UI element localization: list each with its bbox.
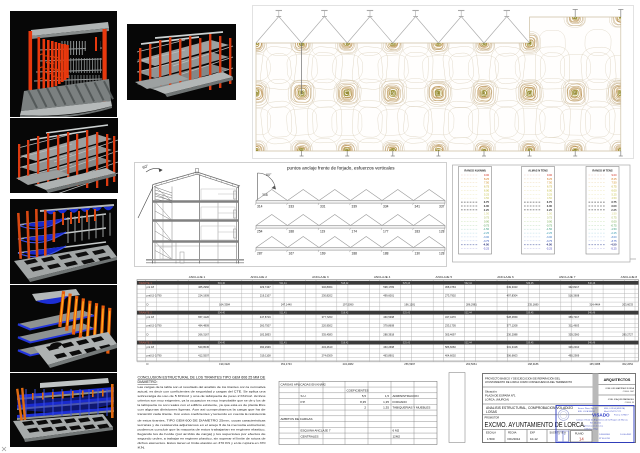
svg-text:pnt0,5 0,790: pnt0,5 0,790 <box>147 324 162 328</box>
svg-text:-0.75: -0.75 <box>483 223 489 227</box>
svg-text:con algunas divisiones ligeras: con algunas divisiones ligeras. Aun asi … <box>138 408 266 412</box>
svg-text:220,9502: 220,9502 <box>322 324 333 328</box>
svg-text:DIAMETRO:: DIAMETRO: <box>138 380 158 384</box>
svg-text:la tabiqueria no son reales co: la tabiqueria no son reales con el edifi… <box>138 403 266 407</box>
svg-text:188: 188 <box>289 230 295 234</box>
svg-text:1.50: 1.50 <box>484 212 490 216</box>
svg-text:TIRANTE 1: TIRANTE 1 <box>139 281 153 285</box>
svg-text:-1.50: -1.50 <box>483 227 489 231</box>
svg-text:182,5853: 182,5853 <box>260 332 271 336</box>
svg-text:Ref. 40-0221: Ref. 40-0221 <box>590 423 601 425</box>
svg-text:504,40: 504,40 <box>218 282 226 285</box>
svg-text:COEFICIENTES: COEFICIENTES <box>347 388 369 392</box>
svg-text:S.U.: S.U. <box>301 394 307 398</box>
svg-text:347,4470: 347,4470 <box>445 315 456 319</box>
svg-text:-5.25: -5.25 <box>483 247 489 251</box>
svg-text:TIRANTE 3: TIRANTE 3 <box>139 341 153 345</box>
svg-text:532,44: 532,44 <box>464 342 472 345</box>
svg-text:3.75: 3.75 <box>611 200 617 204</box>
svg-text:-5.25: -5.25 <box>546 247 552 251</box>
svg-text:-3.00: -3.00 <box>611 235 617 239</box>
svg-text:332,8217: 332,8217 <box>568 285 579 289</box>
svg-text:273,7902: 273,7902 <box>445 294 456 298</box>
svg-text:274,6309: 274,6309 <box>322 354 333 358</box>
svg-text:167: 167 <box>289 252 295 256</box>
svg-text:197,5090: 197,5090 <box>343 302 354 306</box>
svg-text:368,4763: 368,4763 <box>445 285 456 289</box>
svg-text:3.00: 3.00 <box>611 204 617 208</box>
svg-text:8.25: 8.25 <box>547 177 553 181</box>
svg-text:2.25: 2.25 <box>484 208 490 212</box>
svg-text:235,1680: 235,1680 <box>528 302 539 306</box>
svg-text:177: 177 <box>383 230 389 234</box>
svg-text:119: 119 <box>320 230 325 234</box>
svg-text:6.00: 6.00 <box>612 189 618 193</box>
svg-text:ESCALA: ESCALA <box>486 432 496 435</box>
svg-text:criterios son muy exigentes, y: criterios son muy exigentes, ya la ocupa… <box>138 399 266 403</box>
svg-text:335,4583: 335,4583 <box>322 332 333 336</box>
svg-text:12M2: 12M2 <box>393 434 401 438</box>
svg-text:PLANO: PLANO <box>575 433 584 436</box>
svg-text:0.00: 0.00 <box>484 219 490 223</box>
svg-text:C/ Alamo, 1 Bajo: C/ Alamo, 1 Bajo <box>584 428 598 431</box>
svg-text:224,1909: 224,1909 <box>198 294 209 298</box>
svg-text:130: 130 <box>415 252 421 256</box>
svg-text:9.00: 9.00 <box>547 173 553 177</box>
svg-text:Fecha: 679477: Fecha: 679477 <box>614 415 629 417</box>
svg-text:pnt 18: pnt 18 <box>147 345 155 349</box>
svg-text:494,4809: 494,4809 <box>198 324 209 328</box>
svg-text:465,2960: 465,2960 <box>198 285 209 289</box>
svg-text:llegando los de borde (por amb: llegando los de borde (por ambito de car… <box>138 432 266 436</box>
svg-text:Nº 66-4760: Nº 66-4760 <box>599 437 611 440</box>
svg-text:128: 128 <box>439 252 445 256</box>
svg-text:EXP: EXP <box>530 432 535 435</box>
svg-text:287: 287 <box>257 252 263 256</box>
svg-text:598,1783: 598,1783 <box>383 285 394 289</box>
svg-text:1,35: 1,35 <box>383 400 389 404</box>
svg-text:219,2107: 219,2107 <box>260 294 271 298</box>
svg-text:-4.50: -4.50 <box>483 243 490 247</box>
svg-text:0.75: 0.75 <box>484 216 490 220</box>
svg-text:puntos anclaje frente de forja: puntos anclaje frente de forjado, esfuer… <box>287 166 395 171</box>
svg-text:254: 254 <box>257 230 263 234</box>
svg-text:-4.50: -4.50 <box>610 243 617 247</box>
svg-text:233,1705: 233,1705 <box>445 324 456 328</box>
svg-text:5.25: 5.25 <box>484 192 490 196</box>
svg-text:539,45: 539,45 <box>526 282 534 285</box>
svg-text:6.75: 6.75 <box>612 185 618 189</box>
svg-text:247,1440: 247,1440 <box>281 302 292 306</box>
svg-text:169: 169 <box>320 252 326 256</box>
svg-text:3.75: 3.75 <box>484 200 490 204</box>
svg-text:60°: 60° <box>266 173 272 177</box>
svg-text:288,3918: 288,3918 <box>383 332 394 336</box>
svg-text:164,3384: 164,3384 <box>219 302 230 306</box>
svg-text:LORCA, (MURCIA): LORCA, (MURCIA) <box>485 398 509 402</box>
svg-text:280,2727: 280,2727 <box>622 332 633 336</box>
svg-text:5.25: 5.25 <box>547 192 553 196</box>
svg-text:183: 183 <box>415 230 421 234</box>
svg-text:546,46: 546,46 <box>588 312 596 315</box>
svg-text:3.75: 3.75 <box>547 200 553 204</box>
svg-text:KN.: KN. <box>138 445 146 449</box>
svg-text:230,8202: 230,8202 <box>322 294 333 298</box>
svg-text:D: D <box>147 362 149 366</box>
svg-text:sobrecarga de uso de 5 KN/m2 y: sobrecarga de uso de 5 KN/m2 y una de ta… <box>138 394 267 398</box>
svg-text:segundo orden, a trabajar en r: segundo orden, a trabajar en regimen pla… <box>138 436 266 440</box>
svg-text:230,2088: 230,2088 <box>507 332 518 336</box>
svg-text:532,44: 532,44 <box>464 312 472 315</box>
svg-text:1.50: 1.50 <box>547 212 553 216</box>
svg-text:2.25: 2.25 <box>611 208 617 212</box>
svg-text:-3.75: -3.75 <box>611 239 617 243</box>
svg-text:377,7263: 377,7263 <box>322 315 333 319</box>
svg-text:ANALISIS ESTRUCTURAL, COMPROBA: ANALISIS ESTRUCTURAL, COMPROBACION VOLAD… <box>486 406 573 410</box>
svg-text:6.75: 6.75 <box>547 185 553 189</box>
svg-text:532,44: 532,44 <box>464 282 472 285</box>
svg-text:128: 128 <box>439 230 445 234</box>
svg-text:256,5997: 256,5997 <box>404 362 415 366</box>
svg-text:286,2981: 286,2981 <box>466 302 477 306</box>
svg-text:LOSAS: LOSAS <box>486 410 498 414</box>
svg-text:4.50: 4.50 <box>547 196 553 200</box>
svg-text:497,8304: 497,8304 <box>507 294 518 298</box>
svg-text:463,2698: 463,2698 <box>383 345 394 349</box>
svg-text:pnt 18: pnt 18 <box>147 285 155 289</box>
svg-text:463,8901: 463,8901 <box>383 354 394 358</box>
svg-text:314: 314 <box>257 205 263 209</box>
svg-text:-2.25: -2.25 <box>546 231 552 235</box>
svg-text:-0.75: -0.75 <box>611 223 617 227</box>
svg-text:podemos concluir que la mayori: podemos concluir que la mayoria de estos… <box>138 427 266 431</box>
svg-text:-3.00: -3.00 <box>483 235 489 239</box>
svg-text:196,1281: 196,1281 <box>404 302 415 306</box>
svg-text:-5.25: -5.25 <box>611 247 617 251</box>
svg-text:390,2939: 390,2939 <box>260 345 271 349</box>
svg-text:COLEG. 1407: COLEG. 1407 <box>623 391 634 393</box>
svg-text:518,42: 518,42 <box>341 342 349 345</box>
svg-text:CONCLUSION ESTRUCTURAL DE LOS: CONCLUSION ESTRUCTURAL DE LOS TIRANTES T… <box>138 376 266 380</box>
svg-text:de estos tirantes, TIPO GEM 60: de estos tirantes, TIPO GEM 600 DE DIAME… <box>138 418 267 422</box>
svg-text:7.50: 7.50 <box>612 181 618 185</box>
svg-text:511,41: 511,41 <box>280 342 288 345</box>
svg-text:528,4659: 528,4659 <box>507 315 518 319</box>
svg-text:P.P.: P.P. <box>301 400 306 404</box>
svg-text:ANCLAJE 7: ANCLAJE 7 <box>559 275 576 279</box>
svg-text:D: D <box>147 302 149 306</box>
svg-text:260,7507: 260,7507 <box>260 324 271 328</box>
svg-text:14-06-4962: 14-06-4962 <box>620 434 632 436</box>
svg-text:516,3608: 516,3608 <box>568 294 579 298</box>
svg-text:ANCLAJE 8: ANCLAJE 8 <box>621 275 638 279</box>
svg-text:0.75: 0.75 <box>612 216 618 220</box>
svg-text:TABIQUERIAS Y MUEBLES: TABIQUERIAS Y MUEBLES <box>393 406 431 410</box>
svg-text:1,5: 1,5 <box>385 394 390 398</box>
svg-text:FECHA: FECHA <box>508 432 517 435</box>
svg-text:525,43: 525,43 <box>403 282 411 285</box>
svg-text:-3.00: -3.00 <box>546 235 552 239</box>
svg-text:319,1108: 319,1108 <box>260 354 271 358</box>
svg-text:RANGO N (KN/M): RANGO N (KN/M) <box>464 169 485 173</box>
svg-text:CARGAS APLICADAS EN KN/M2: CARGAS APLICADAS EN KN/M2 <box>281 383 327 387</box>
svg-text:9.00: 9.00 <box>612 173 618 177</box>
svg-text:6.00: 6.00 <box>484 189 490 193</box>
svg-text:TIRANTE 2: TIRANTE 2 <box>139 311 153 315</box>
svg-text:539,45: 539,45 <box>526 342 534 345</box>
svg-text:329,7437: 329,7437 <box>260 285 271 289</box>
svg-text:490,2909: 490,2909 <box>568 354 579 358</box>
svg-text:4.50: 4.50 <box>484 196 490 200</box>
svg-text:188: 188 <box>383 252 389 256</box>
svg-text:314,4464: 314,4464 <box>589 302 600 306</box>
svg-text:331,3418: 331,3418 <box>507 345 518 349</box>
svg-text:0.00: 0.00 <box>547 219 553 223</box>
svg-text:Excma. Plaza, Gpo. B: Excma. Plaza, Gpo. B <box>578 408 597 410</box>
svg-text:404,6002: 404,6002 <box>445 354 456 358</box>
svg-text:504,40: 504,40 <box>218 342 226 345</box>
svg-text:VISADO: VISADO <box>592 413 610 418</box>
svg-text:352,4733: 352,4733 <box>281 362 292 366</box>
svg-text:Colegio Oficial de Arquitectos: Colegio Oficial de Arquitectos de la Reg… <box>576 419 628 422</box>
svg-text:JOSE JOAQUIN PARRA SLE: JOSE JOAQUIN PARRA SLE <box>608 398 635 401</box>
svg-text:3.00: 3.00 <box>484 204 490 208</box>
svg-text:520,8045: 520,8045 <box>198 345 209 349</box>
svg-text:6 M2: 6 M2 <box>393 429 400 433</box>
svg-text:174: 174 <box>352 230 358 234</box>
svg-text:234,4982: 234,4982 <box>343 362 354 366</box>
svg-text:377,1208: 377,1208 <box>507 324 518 328</box>
svg-text:pnt 18: pnt 18 <box>147 315 155 319</box>
svg-text:460,5398: 460,5398 <box>383 315 394 319</box>
svg-text:331: 331 <box>320 205 326 209</box>
svg-text:-1.50: -1.50 <box>611 227 617 231</box>
svg-text:511,41: 511,41 <box>280 282 288 285</box>
svg-text:339: 339 <box>352 205 358 209</box>
svg-text:379,8608: 379,8608 <box>383 324 394 328</box>
svg-text:341: 341 <box>415 205 421 209</box>
svg-text:329,2560: 329,2560 <box>568 332 579 336</box>
svg-text:14/06/4960: 14/06/4960 <box>599 434 611 436</box>
svg-text:7.50: 7.50 <box>547 181 553 185</box>
svg-text:4960, LORCA (MURCIA): 4960, LORCA (MURCIA) <box>604 407 625 410</box>
svg-text:263,5061: 263,5061 <box>466 362 477 366</box>
svg-text:546,46: 546,46 <box>588 282 596 285</box>
svg-text:-3.75: -3.75 <box>546 239 552 243</box>
svg-text:511,41: 511,41 <box>280 312 288 315</box>
svg-text:412,5507: 412,5507 <box>198 354 209 358</box>
svg-text:10-12: 10-12 <box>530 437 538 441</box>
svg-text:346,8064: 346,8064 <box>322 285 333 289</box>
svg-text:8.25: 8.25 <box>484 177 490 181</box>
svg-text:499,6001: 499,6001 <box>383 294 394 298</box>
svg-text:ANCLAJE 1: ANCLAJE 1 <box>189 275 206 279</box>
svg-text:8.25: 8.25 <box>612 177 618 181</box>
svg-text:359,7317: 359,7317 <box>568 315 579 319</box>
svg-text:1:500: 1:500 <box>487 437 495 441</box>
svg-text:165,3388: 165,3388 <box>589 362 600 366</box>
svg-text:14: 14 <box>579 437 584 442</box>
svg-text:504,40: 504,40 <box>218 312 226 315</box>
svg-text:188: 188 <box>352 252 358 256</box>
svg-text:9.00: 9.00 <box>484 173 490 177</box>
svg-text:FORJADO: FORJADO <box>393 400 408 404</box>
svg-text:1,35: 1,35 <box>383 406 389 410</box>
svg-text:199,1920: 199,1920 <box>219 362 230 366</box>
svg-text:-4.50: -4.50 <box>546 243 553 247</box>
svg-text:168,3186: 168,3186 <box>528 362 539 366</box>
svg-text:447,8719: 447,8719 <box>260 315 271 319</box>
svg-text:306,6603: 306,6603 <box>507 354 518 358</box>
svg-text:actual, es decir con coeficien: actual, es decir con coeficientes de seg… <box>138 390 266 394</box>
svg-text:2.25: 2.25 <box>547 208 553 212</box>
svg-text:COLEG. 99: COLEG. 99 <box>625 402 634 404</box>
svg-text:RANGO M TENS: RANGO M TENS <box>592 169 612 173</box>
svg-text:333: 333 <box>289 205 295 209</box>
svg-text:8,35: 8,35 <box>360 400 366 404</box>
svg-text:-2.25: -2.25 <box>483 231 489 235</box>
svg-text:518,42: 518,42 <box>341 282 349 285</box>
svg-text:Las cargas de la tabla son el: Las cargas de la tabla son el resultado … <box>138 385 266 389</box>
svg-text:302,2654: 302,2654 <box>622 362 633 366</box>
svg-text:transmitir cada tirante. Con e: transmitir cada tirante. Con estos coefi… <box>138 412 266 416</box>
svg-text:Demarcacion de Lorca: Demarcacion de Lorca <box>584 425 604 428</box>
svg-text:326,2310: 326,2310 <box>568 345 579 349</box>
svg-text:pnt0,5 0,790: pnt0,5 0,790 <box>147 354 162 358</box>
svg-text:7.50: 7.50 <box>484 181 490 185</box>
svg-text:6.75: 6.75 <box>484 185 490 189</box>
svg-text:AYUNTAMIENTO DE LORCA COMO CON: AYUNTAMIENTO DE LORCA COMO CONSECUENCIA … <box>485 380 572 384</box>
svg-text:CENTRALES: CENTRALES <box>301 434 319 438</box>
svg-text:649,3323: 649,3323 <box>507 285 518 289</box>
svg-text:DIC/2012: DIC/2012 <box>508 437 521 441</box>
svg-text:ANCLAJE 2: ANCLAJE 2 <box>250 275 267 279</box>
svg-text:434,4610: 434,4610 <box>322 345 333 349</box>
svg-text:6.00: 6.00 <box>547 189 553 193</box>
svg-text:ADMINISTRACION: ADMINISTRACION <box>393 394 419 398</box>
svg-text:5.25: 5.25 <box>612 192 618 196</box>
svg-text:pnt0,5 0,790: pnt0,5 0,790 <box>147 294 162 298</box>
svg-text:D: D <box>147 332 149 336</box>
svg-text:3.00: 3.00 <box>547 204 553 208</box>
svg-text:1.50: 1.50 <box>612 212 618 216</box>
svg-text:657,4120: 657,4120 <box>198 315 209 319</box>
svg-text:311,4603: 311,4603 <box>569 324 580 328</box>
svg-text:ARQUITECTOS: ARQUITECTOS <box>604 378 631 382</box>
svg-text:AMBITOS DE CARGAS: AMBITOS DE CARGAS <box>281 417 313 421</box>
svg-text:-1.50: -1.50 <box>546 227 552 231</box>
svg-text:539,45: 539,45 <box>526 312 534 315</box>
svg-text:525,43: 525,43 <box>403 342 411 345</box>
svg-text:518,42: 518,42 <box>341 312 349 315</box>
svg-text:305,4697: 305,4697 <box>445 332 456 336</box>
svg-text:-0.75: -0.75 <box>546 223 552 227</box>
svg-text:PROMOTOR: PROMOTOR <box>485 416 500 419</box>
svg-text:586,6060: 586,6060 <box>445 345 456 349</box>
svg-text:ANCLAJE 4: ANCLAJE 4 <box>374 275 391 279</box>
svg-text:334: 334 <box>383 205 389 209</box>
svg-text:337: 337 <box>439 205 445 209</box>
svg-text:308: 308 <box>262 193 268 197</box>
svg-text:tecnicas y de resistencia adju: tecnicas y de resistencia adjuntamos en … <box>138 423 266 427</box>
svg-text:EXCMO. AYUNTAMIENTO DE LORCA.: EXCMO. AYUNTAMIENTO DE LORCA. <box>485 422 586 429</box>
svg-text:dichos elementos. Estos tienen: dichos elementos. Estos tienen el limite… <box>138 441 266 445</box>
svg-text:ESQUINA ANCLAJE 7: ESQUINA ANCLAJE 7 <box>301 429 331 433</box>
svg-text:5,5: 5,5 <box>362 394 367 398</box>
svg-text:0.00: 0.00 <box>612 219 618 223</box>
svg-text:0.75: 0.75 <box>547 216 553 220</box>
svg-text:ANCLAJE 3: ANCLAJE 3 <box>312 275 329 279</box>
svg-text:525,43: 525,43 <box>403 312 411 315</box>
svg-text:ANCLAJE 5: ANCLAJE 5 <box>436 275 453 279</box>
svg-text:-3.75: -3.75 <box>483 239 489 243</box>
svg-text:ANCLAJE 6: ANCLAJE 6 <box>497 275 514 279</box>
svg-text:266,3167: 266,3167 <box>198 332 209 336</box>
svg-text:203,6033: 203,6033 <box>622 302 633 306</box>
svg-text:ALMAS N TENS: ALMAS N TENS <box>528 169 548 173</box>
svg-text:-2.25: -2.25 <box>611 231 617 235</box>
svg-text:546,46: 546,46 <box>588 342 596 345</box>
svg-text:4.50: 4.50 <box>612 196 618 200</box>
svg-text:JOSE LUIS MARTINEZ RONDA: JOSE LUIS MARTINEZ RONDA <box>605 387 634 390</box>
